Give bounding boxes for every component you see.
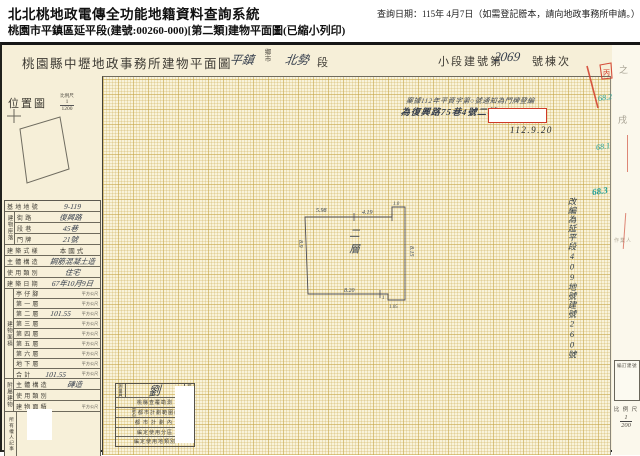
surveyor-label: 測量員 [116, 384, 126, 397]
survey-mark: 68.2 [597, 92, 612, 103]
unit-label: 平方公尺 [81, 351, 99, 357]
area-row: 第一層 平方公尺 [14, 299, 100, 309]
table-row: 門牌 21號 [15, 234, 100, 245]
row-value: 67年10月9日 [44, 278, 101, 289]
row-value: 住宅 [44, 267, 101, 278]
row-label: 第六層 [14, 349, 41, 358]
row-label: 使用類別 [14, 391, 49, 400]
location-group: 建物座落 街路 復興路 段巷 45巷 門牌 21號 [5, 212, 100, 245]
row-label: 第五層 [14, 339, 41, 348]
area-row: 第四層 平方公尺 [14, 329, 100, 339]
red-marks: 丙 [557, 55, 627, 125]
row-value: 本國式 [45, 245, 100, 255]
row-value: 磚造 [48, 379, 101, 390]
renumbering-note: 改編為延平段409地號建號260號 [566, 197, 578, 392]
table-row: 使用類別 住宅 [5, 267, 100, 278]
edit-building-no-box: 編訂建號 [614, 360, 640, 401]
stamp-row-prefix: 是否 [130, 408, 138, 417]
row-label: 地下層 [14, 359, 41, 368]
area-group: 建物面積 亭仔腳 平方公尺 第一層 平方公尺 第二層 101.55 平方公尺 [5, 289, 100, 379]
unit-bottom: 市 [265, 56, 272, 63]
unit-label: 平方公尺 [81, 311, 99, 317]
dim-right: 8.15 [408, 246, 414, 257]
unit-top: 鄉 [265, 49, 272, 56]
row-value: 101.55 [40, 309, 81, 318]
group-label: 建物座落 [5, 212, 15, 244]
table-row: 段巷 45巷 [15, 223, 100, 234]
area-row-total: 合計 101.55 平方公尺 [14, 369, 100, 379]
unit-label: 平方公尺 [81, 291, 99, 297]
dim-left: 8.9 [297, 240, 303, 248]
unit-label: 平方公尺 [81, 404, 99, 410]
table-row: 建築日期 67年10月9日 [5, 278, 100, 289]
red-stamp-char: 丙 [603, 69, 610, 77]
row-label: 基地地號 [5, 202, 45, 211]
table-row: 基地地號 9-119 [5, 201, 100, 212]
unit-label: 平方公尺 [81, 361, 99, 367]
township-unit-label: 鄉 市 [263, 49, 273, 63]
margin-red-stroke [627, 135, 628, 172]
row-label: 亭仔腳 [14, 289, 41, 298]
table-row: 街路 復興路 [15, 212, 100, 223]
area-row: 第五層 平方公尺 [14, 339, 100, 349]
row-label: 第一層 [14, 299, 41, 308]
edit-box-label: 編訂建號 [615, 361, 639, 369]
unit-label: 平方公尺 [81, 331, 99, 337]
section-handwritten: 北勢 [284, 51, 310, 68]
group-label: 建物面積 [5, 289, 14, 378]
row-label: 主體構造 [14, 380, 49, 389]
dim-step-a: 1 [382, 296, 385, 301]
row-label: 建築式樣 [5, 246, 45, 255]
redaction-box [488, 108, 547, 123]
doorplate-note-line2: 為復興路75巷4號二樓 [400, 105, 498, 118]
scanned-floorplan-sheet: 桃園縣中壢地政事務所建物平面圖 平鎮 鄉 市 北勢 段 小段建號第 2069 號… [0, 42, 640, 452]
browser-header: 北北桃地政電傳全功能地籍資料查詢系統 查詢日期：115年 4月7日（如需登記謄本… [0, 0, 640, 42]
row-label: 主體構造 [5, 257, 45, 266]
row-label: 建築日期 [5, 279, 45, 288]
dim-bottom: 8.20 [344, 288, 355, 294]
row-value: 45巷 [40, 223, 101, 234]
group-label: 所有權人記事 [5, 412, 17, 456]
scale-denominator: 200 [611, 422, 640, 429]
document-title: 桃園市平鎮區延平段(建號:00260-000)[第二類]建物平面圖(已縮小列印) [8, 22, 345, 38]
area-row: 第六層 平方公尺 [14, 349, 100, 359]
area-row: 第三層 平方公尺 [14, 319, 100, 329]
redaction-box [27, 409, 52, 440]
row-value: 9-119 [44, 202, 100, 211]
annex-row: 使用類別 [14, 390, 100, 401]
annex-row: 主體構造 磚造 [14, 379, 100, 390]
unit-label: 平方公尺 [81, 301, 99, 307]
row-label: 段巷 [15, 224, 41, 233]
stamp-row-text: 都市計劃範圍內 [138, 409, 180, 416]
note-date: 112.9.20 [510, 125, 553, 135]
query-date-label: 查詢日期：115年 4月7日（如需登記謄本，請向地政事務所申請。） [377, 7, 640, 20]
scale-label: 比 例 尺 [611, 405, 640, 413]
row-value: 21號 [40, 234, 101, 245]
row-value: 復興路 [40, 212, 101, 223]
unit-label: 平方公尺 [81, 371, 99, 377]
dim-top-mid: 4.19 [362, 209, 373, 216]
sheet-title: 桃園縣中壢地政事務所建物平面圖 [22, 53, 232, 72]
dim-step-b: 1.05 [389, 305, 398, 310]
row-label: 合計 [14, 370, 32, 379]
area-row: 第二層 101.55 平方公尺 [14, 309, 100, 319]
row-label: 第三層 [14, 319, 41, 328]
survey-mark: 68.1 [595, 141, 610, 152]
row-label: 使用類別 [5, 268, 45, 277]
table-row: 建築式樣 本國式 [5, 245, 100, 256]
area-row: 亭仔腳 平方公尺 [14, 289, 100, 299]
row-label: 門牌 [15, 235, 41, 244]
dim-top-left: 5.98 [316, 208, 327, 214]
floor-label: 二層 [346, 228, 361, 259]
township-handwritten: 平鎮 [229, 51, 255, 68]
row-label: 第四層 [14, 329, 41, 338]
row-label: 街路 [15, 213, 41, 222]
row-value: 鋼筋混凝土造 [44, 256, 101, 267]
margin-faint-char: 戌 [618, 113, 627, 126]
row-label: 第二層 [14, 309, 41, 318]
redaction-box [175, 386, 194, 443]
owner-notes-group: 所有權人記事 [5, 412, 100, 456]
building-info-table: 基地地號 9-119 建物座落 街路 復興路 段巷 45巷 門牌 21號 [4, 200, 101, 456]
building-no-handwritten: 2069 [493, 49, 521, 65]
section-suffix-label: 段 [317, 54, 330, 70]
scale-numerator: 1 [620, 414, 632, 422]
annex-group: 附屬建物 主體構造 磚造 使用類別 建物面積 平方公尺 [5, 379, 100, 412]
system-title: 北北桃地政電傳全功能地籍資料查詢系統 [8, 3, 260, 23]
plan-scale: 比 例 尺 1 200 [611, 405, 640, 429]
dim-top-right: 1.0 [393, 202, 400, 207]
scale-numerator: 1 [60, 99, 74, 106]
margin-faint-char: 之 [619, 63, 628, 76]
location-sketch [6, 107, 98, 193]
group-label: 附屬建物 [5, 379, 14, 411]
unit-label: 平方公尺 [81, 341, 99, 347]
area-row: 地下層 平方公尺 [14, 359, 100, 369]
table-row: 主體構造 鋼筋混凝土造 [5, 256, 100, 267]
row-value: 101.55 [32, 370, 81, 379]
unit-label: 平方公尺 [81, 321, 99, 327]
floorplan-drawing: 5.98 4.19 1.0 8.9 8.15 8.20 1 1.05 [292, 198, 472, 313]
